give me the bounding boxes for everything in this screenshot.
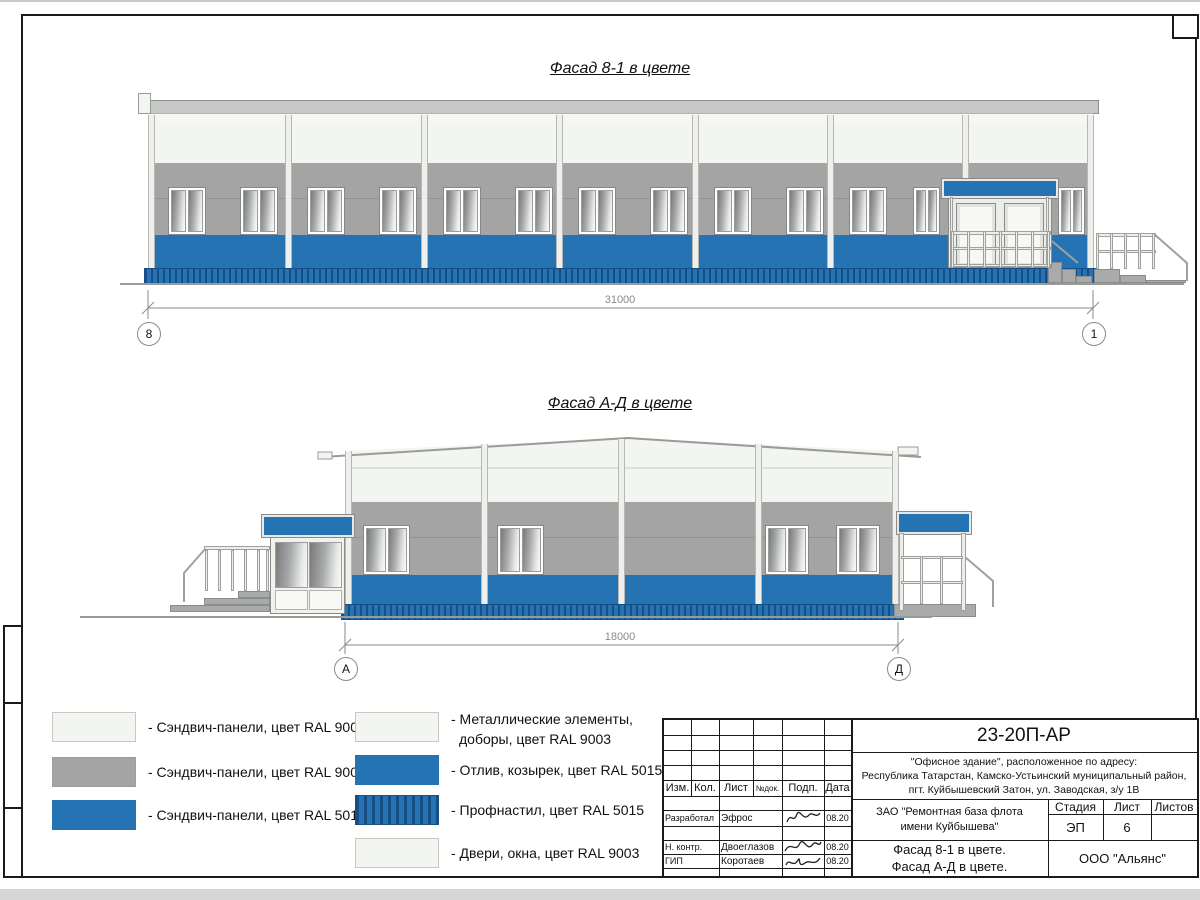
tb-client-line1: ЗАО "Ремонтная база флота bbox=[876, 805, 1023, 820]
axis-bubble-a: А bbox=[334, 657, 358, 681]
entrance-step bbox=[1062, 269, 1076, 283]
window-pane bbox=[789, 190, 804, 232]
tb-client-line2: имени Куйбышева" bbox=[900, 820, 998, 835]
window-pane bbox=[734, 190, 749, 232]
window bbox=[786, 187, 824, 235]
facade2-plinth bbox=[341, 604, 904, 620]
axis-bubble-d: Д bbox=[887, 657, 911, 681]
window-pane bbox=[869, 190, 884, 232]
window-pane bbox=[366, 528, 386, 572]
window bbox=[168, 187, 206, 235]
pilaster bbox=[556, 115, 563, 268]
frame-left-box-3 bbox=[3, 807, 23, 878]
vestibule-panel bbox=[309, 590, 342, 610]
signature bbox=[784, 808, 822, 828]
window-pane bbox=[717, 190, 732, 232]
legend-swatch-ral9003 bbox=[52, 712, 136, 742]
window bbox=[363, 525, 410, 575]
tb-col-izm: Изм. bbox=[664, 780, 691, 796]
tb-h-list: Лист bbox=[1103, 799, 1151, 814]
tb-col-kol: Кол. bbox=[691, 780, 719, 796]
tb-address: "Офисное здание", расположенное по адрес… bbox=[851, 753, 1197, 799]
window bbox=[913, 187, 940, 235]
window-pane bbox=[243, 190, 258, 232]
tb-line bbox=[664, 735, 851, 736]
pilaster bbox=[421, 115, 428, 268]
pilaster bbox=[148, 115, 155, 268]
stair-railing-post bbox=[1124, 233, 1127, 269]
legend-swatch-metal bbox=[355, 712, 439, 742]
tb-h-listov: Листов bbox=[1151, 799, 1197, 814]
pilaster bbox=[285, 115, 292, 268]
stair-railing-post bbox=[1152, 233, 1155, 269]
tb-line bbox=[664, 796, 851, 797]
stair-step bbox=[238, 591, 270, 598]
tb-client: ЗАО "Ремонтная база флота имени Куйбышев… bbox=[851, 799, 1048, 840]
tb-line bbox=[664, 765, 851, 766]
window-pane bbox=[518, 190, 533, 232]
legend-label-line2: доборы, цвет RAL 9003 bbox=[451, 729, 633, 749]
stair-step bbox=[204, 598, 270, 605]
legend-label: - Отлив, козырек, цвет RAL 5015 bbox=[451, 755, 662, 785]
pilaster bbox=[618, 439, 625, 604]
window bbox=[1058, 187, 1085, 235]
tb-doc-number: 23-20П-АР bbox=[851, 720, 1197, 752]
railing-post bbox=[1031, 231, 1034, 268]
window bbox=[578, 187, 616, 235]
stair-railing-post bbox=[205, 550, 208, 591]
facade1-title: Фасад 8-1 в цвете bbox=[470, 60, 770, 78]
tb-address-line1: "Офисное здание", расположенное по адрес… bbox=[911, 755, 1137, 769]
tb-col-data: Дата bbox=[824, 780, 851, 796]
tb-listov-value bbox=[1151, 814, 1197, 840]
window bbox=[650, 187, 688, 235]
window-pane bbox=[852, 190, 867, 232]
stair-step bbox=[1094, 269, 1120, 283]
window-pane bbox=[581, 190, 596, 232]
railing-bar bbox=[901, 556, 963, 559]
facade2-roof-tab-right bbox=[898, 447, 918, 455]
tb-address-line3: пгт. Куйбышевский Затон, ул. Заводская, … bbox=[909, 783, 1140, 797]
window-pane bbox=[188, 190, 203, 232]
tb-line bbox=[664, 750, 851, 751]
window bbox=[765, 525, 809, 575]
window-pane bbox=[839, 528, 857, 572]
window bbox=[443, 187, 481, 235]
tb-name: Эфрос bbox=[721, 810, 782, 826]
railing-post bbox=[1015, 231, 1018, 268]
pilaster bbox=[692, 115, 699, 268]
window-pane bbox=[928, 190, 938, 232]
window bbox=[379, 187, 417, 235]
railing-bar bbox=[901, 581, 963, 584]
tb-sheet-name-line2: Фасад А-Д в цвете. bbox=[892, 858, 1008, 875]
frame-left-box-1 bbox=[3, 625, 23, 704]
pilaster bbox=[481, 444, 488, 604]
legend-label: - Двери, окна, цвет RAL 9003 bbox=[451, 838, 639, 868]
legend-label-line1: - Металлические элементы, bbox=[451, 709, 633, 729]
tb-address-line2: Республика Татарстан, Камско-Устьинский … bbox=[862, 769, 1187, 783]
legend-swatch-ral9006 bbox=[52, 757, 136, 787]
railing-post bbox=[983, 231, 986, 268]
facade1-plinth bbox=[144, 268, 1097, 285]
drawing-sheet: Фасад 8-1 в цвете bbox=[0, 0, 1200, 900]
porch-post bbox=[899, 533, 904, 611]
axis-bubble-8: 8 bbox=[137, 322, 161, 346]
tb-company: ООО "Альянс" bbox=[1048, 840, 1197, 876]
stair-railing-post bbox=[257, 550, 260, 591]
railing-post bbox=[920, 556, 923, 604]
facade1-roof-strip bbox=[142, 100, 1099, 114]
window-pane bbox=[1073, 190, 1083, 232]
axis-bubble-1: 1 bbox=[1082, 322, 1106, 346]
paper-edge-top bbox=[0, 0, 1200, 2]
window-pane bbox=[768, 528, 786, 572]
window-pane bbox=[327, 190, 342, 232]
vestibule-canopy bbox=[261, 514, 355, 538]
stair-railing-post bbox=[244, 550, 247, 591]
pilaster bbox=[755, 444, 762, 604]
paper-edge-bottom bbox=[0, 889, 1200, 900]
window-pane bbox=[399, 190, 414, 232]
signature bbox=[783, 853, 823, 871]
window bbox=[849, 187, 887, 235]
tb-col-podp: Подп. bbox=[782, 780, 824, 796]
legend-label: - Сэндвич-панели, цвет RAL 9003 bbox=[148, 712, 366, 742]
window-pane bbox=[653, 190, 668, 232]
facade2-title: Фасад А-Д в цвете bbox=[470, 395, 770, 413]
porch-canopy bbox=[896, 511, 972, 535]
tb-role: ГИП bbox=[665, 854, 719, 868]
tb-line bbox=[664, 826, 851, 827]
tb-stadia-value: ЭП bbox=[1048, 814, 1103, 840]
window-pane bbox=[806, 190, 821, 232]
window-pane bbox=[463, 190, 478, 232]
railing-post bbox=[951, 231, 954, 268]
tb-date: 08.20 bbox=[824, 840, 851, 854]
vestibule-panel bbox=[275, 590, 308, 610]
legend-label: - Профнастил, цвет RAL 5015 bbox=[451, 795, 644, 825]
stair-railing-post bbox=[218, 550, 221, 591]
window-pane bbox=[310, 190, 325, 232]
window-pane bbox=[535, 190, 550, 232]
door-leaf bbox=[1004, 203, 1044, 267]
window-pane bbox=[171, 190, 186, 232]
window-pane bbox=[446, 190, 461, 232]
window bbox=[497, 525, 544, 575]
legend-label: - Сэндвич-панели, цвет RAL 5015 bbox=[148, 800, 366, 830]
pilaster bbox=[1087, 115, 1094, 268]
frame-left-box-2 bbox=[3, 702, 23, 809]
tb-name: Коротаев bbox=[721, 854, 782, 868]
tb-role: Н. контр. bbox=[665, 840, 719, 854]
facade2-dimension-label: 18000 bbox=[570, 631, 670, 643]
tb-col-ndok: №док. bbox=[753, 780, 782, 796]
tb-col-list: Лист bbox=[719, 780, 753, 796]
tb-date: 08.20 bbox=[824, 810, 851, 826]
tb-sheet-name: Фасад 8-1 в цвете. Фасад А-Д в цвете. bbox=[851, 840, 1048, 876]
tb-line bbox=[719, 720, 720, 876]
window-pane bbox=[522, 528, 542, 572]
stair-step bbox=[1146, 280, 1186, 283]
window bbox=[515, 187, 553, 235]
stair-railing-bar bbox=[204, 546, 270, 550]
stair-railing-post bbox=[1138, 233, 1141, 269]
window-pane bbox=[916, 190, 926, 232]
pilaster bbox=[827, 115, 834, 268]
legend-swatch-doors bbox=[355, 838, 439, 868]
vestibule-glass bbox=[309, 542, 342, 588]
frame-corner-box bbox=[1172, 14, 1199, 39]
window-pane bbox=[388, 528, 408, 572]
railing-post bbox=[1047, 231, 1050, 268]
window-pane bbox=[598, 190, 613, 232]
porch-post bbox=[961, 533, 966, 611]
window-pane bbox=[788, 528, 806, 572]
stair-step bbox=[1120, 275, 1146, 283]
tb-list-value: 6 bbox=[1103, 814, 1151, 840]
railing-post bbox=[999, 231, 1002, 268]
tb-sheet-name-line1: Фасад 8-1 в цвете. bbox=[893, 841, 1006, 858]
stair-railing-post bbox=[266, 550, 269, 591]
window-pane bbox=[670, 190, 685, 232]
stair-railing-post bbox=[1096, 233, 1099, 269]
window bbox=[240, 187, 278, 235]
vestibule-glass bbox=[275, 542, 308, 588]
railing-post bbox=[967, 231, 970, 268]
title-block: Изм. Кол. Лист №док. Подп. Дата Разработ… bbox=[662, 718, 1199, 878]
window-pane bbox=[382, 190, 397, 232]
stair-railing-post bbox=[231, 550, 234, 591]
railing-post bbox=[940, 556, 943, 604]
facade1-dimension-label: 31000 bbox=[570, 294, 670, 306]
window bbox=[836, 525, 880, 575]
tb-role: Разработал bbox=[665, 810, 719, 826]
legend-swatch-ral5015 bbox=[52, 800, 136, 830]
tb-name: Двоеглазов bbox=[721, 840, 782, 854]
stair-step bbox=[170, 605, 270, 612]
tb-h-stadia: Стадия bbox=[1048, 799, 1103, 814]
window-pane bbox=[260, 190, 275, 232]
stair-railing-post bbox=[1110, 233, 1113, 269]
entrance-step bbox=[1076, 276, 1092, 283]
facade2-roof-tab-left bbox=[318, 452, 332, 459]
window-pane bbox=[859, 528, 877, 572]
door-leaf bbox=[956, 203, 996, 267]
window-pane bbox=[500, 528, 520, 572]
legend-swatch-profnastil bbox=[355, 795, 439, 825]
facade1-roof-vent bbox=[138, 93, 151, 114]
window-pane bbox=[1061, 190, 1071, 232]
legend-swatch-otliv bbox=[355, 755, 439, 785]
legend-label: - Металлические элементы, доборы, цвет R… bbox=[451, 709, 633, 749]
window bbox=[714, 187, 752, 235]
tb-date: 08.20 bbox=[824, 854, 851, 868]
window bbox=[307, 187, 345, 235]
entrance-canopy bbox=[941, 178, 1059, 199]
legend-label: - Сэндвич-панели, цвет RAL 9006 bbox=[148, 757, 366, 787]
